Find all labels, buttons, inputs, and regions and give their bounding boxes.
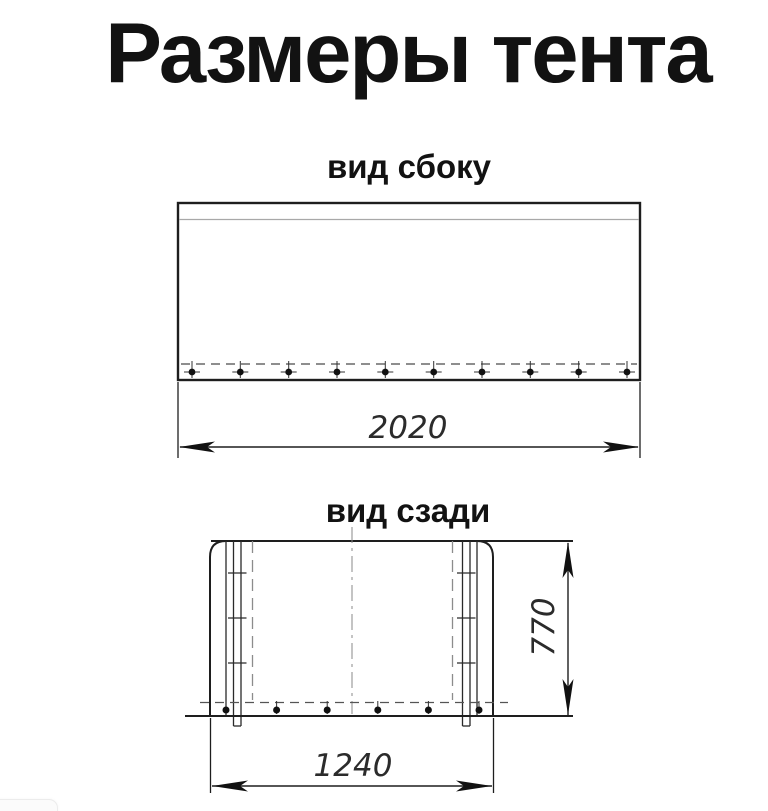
tent-dimensions-infographic: Размеры тента вид сбоку вид сзади	[0, 0, 768, 811]
side-view-outline	[178, 203, 640, 380]
rear-view-right-edge	[477, 541, 493, 716]
rear-width-value: 1240	[314, 748, 393, 784]
side-width-value: 2020	[369, 410, 448, 446]
rear-view-left-edge	[210, 541, 226, 716]
corner-widget-fragment	[0, 799, 58, 811]
side-view-drawing: 2020	[178, 203, 640, 458]
rear-height-value: 770	[526, 597, 562, 656]
technical-drawing-canvas: 2020	[0, 0, 768, 811]
rear-view-width-dimension: 1240	[211, 718, 494, 793]
side-view-width-dimension: 2020	[178, 382, 640, 458]
rear-view-right-strap	[457, 541, 476, 726]
rear-view-height-dimension: 770	[526, 542, 574, 715]
rear-view-left-strap	[228, 541, 247, 726]
rear-view-drawing: 1240 770	[185, 527, 574, 793]
